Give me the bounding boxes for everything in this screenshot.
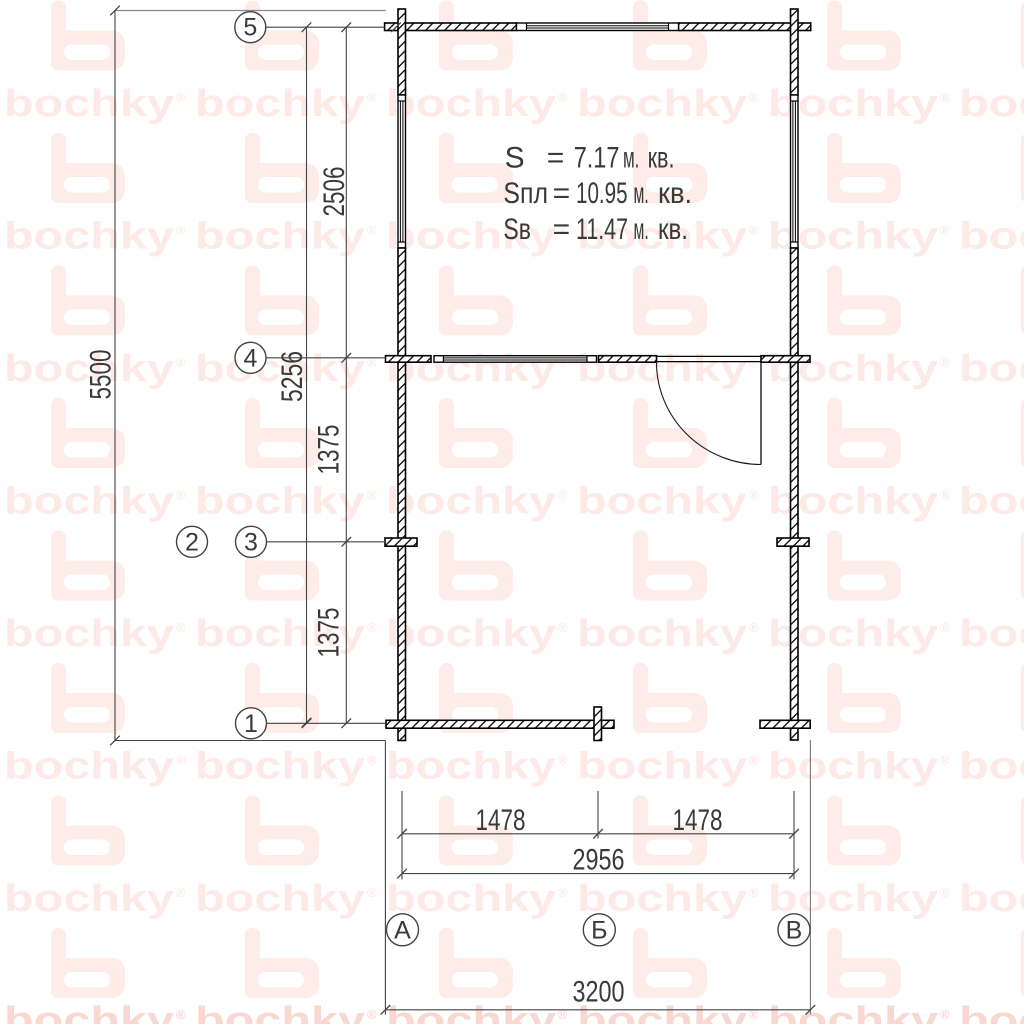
- svg-text:кв.: кв.: [648, 142, 675, 175]
- svg-text:1478: 1478: [476, 804, 526, 837]
- svg-text:В: В: [786, 916, 803, 944]
- svg-text:м.: м.: [634, 177, 649, 210]
- svg-text:2956: 2956: [573, 844, 625, 877]
- svg-text:Sв: Sв: [503, 213, 531, 246]
- svg-text:3: 3: [244, 528, 258, 556]
- svg-text:5256: 5256: [276, 351, 309, 402]
- svg-text:2: 2: [185, 528, 199, 556]
- svg-text:1375: 1375: [313, 608, 346, 658]
- svg-text:5: 5: [243, 14, 257, 42]
- svg-text:Sпл: Sпл: [503, 177, 548, 210]
- svg-text:А: А: [394, 916, 411, 944]
- svg-text:Б: Б: [591, 916, 607, 944]
- svg-text:м.: м.: [634, 213, 649, 246]
- svg-text:3200: 3200: [573, 976, 625, 1009]
- svg-text:2506: 2506: [318, 167, 351, 217]
- svg-text:5500: 5500: [85, 350, 118, 400]
- svg-text:10.95: 10.95: [576, 177, 628, 210]
- svg-text:1375: 1375: [313, 425, 346, 475]
- svg-text:кв.: кв.: [658, 177, 692, 210]
- svg-text:S: S: [505, 142, 525, 175]
- svg-text:1: 1: [244, 710, 258, 738]
- svg-text:=: =: [553, 177, 571, 210]
- svg-text:4: 4: [244, 344, 258, 372]
- svg-text:7.17: 7.17: [574, 142, 620, 175]
- svg-text:=: =: [547, 142, 565, 175]
- svg-text:11.47: 11.47: [576, 213, 628, 246]
- svg-text:1478: 1478: [673, 804, 723, 837]
- svg-text:кв.: кв.: [658, 213, 688, 246]
- svg-text:м.: м.: [623, 142, 639, 175]
- svg-text:=: =: [553, 213, 571, 246]
